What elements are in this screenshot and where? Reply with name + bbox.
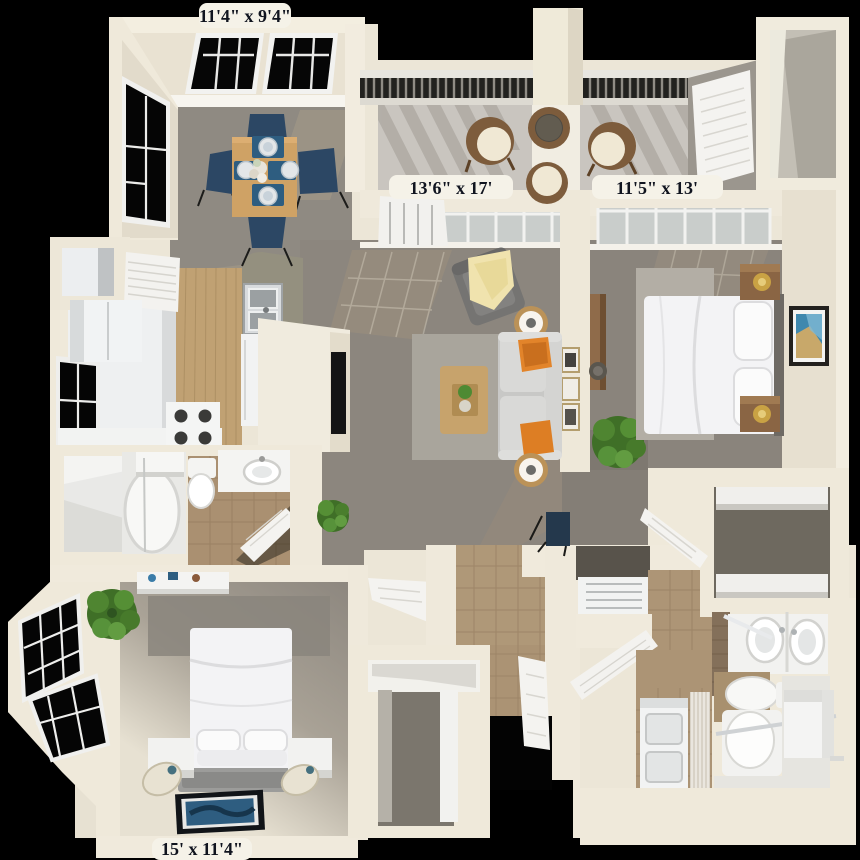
- svg-text:11'5" x 13': 11'5" x 13': [616, 178, 698, 198]
- svg-text:11'4" x 9'4": 11'4" x 9'4": [199, 6, 291, 26]
- svg-text:13'6" x 17': 13'6" x 17': [410, 178, 493, 198]
- svg-text:15' x 11'4": 15' x 11'4": [161, 839, 243, 859]
